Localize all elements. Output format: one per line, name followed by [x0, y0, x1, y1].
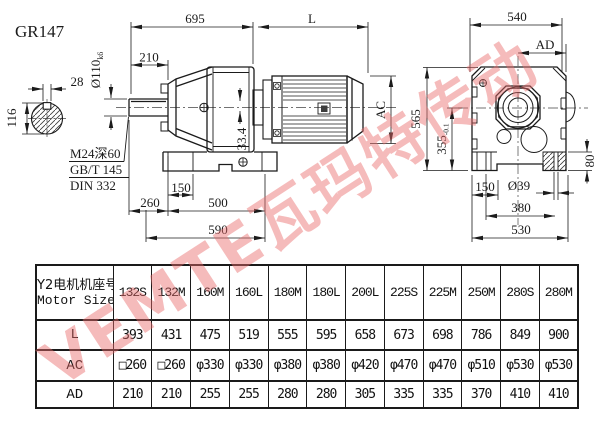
cell-AC-250M: φ510 [462, 350, 501, 381]
cell-L-200L: 658 [346, 320, 385, 350]
cell-AC-180M: φ380 [268, 350, 307, 381]
spec-table: Y2电机机座号Motor Size132S132M160M160L180M180… [35, 264, 579, 409]
cell-AC-160M: φ330 [191, 350, 230, 381]
front-view [116, 67, 398, 171]
cell-AD-160L: 255 [229, 381, 268, 408]
dim-key-width: 28 [71, 74, 84, 89]
technical-drawing: GR147 28 116 M24深60 GB/T 145 DIN 332 [0, 0, 600, 262]
dim-total-height: 565 [408, 109, 423, 129]
dim-front-span: 500 [208, 195, 228, 210]
model-label: GR147 [15, 22, 65, 41]
cell-L-132M: 431 [152, 320, 191, 350]
cell-AD-250M: 370 [462, 381, 501, 408]
cell-AC-160L: φ330 [229, 350, 268, 381]
cell-L-132S: 393 [113, 320, 152, 350]
dim-hole-dia: Ø39 [508, 178, 530, 193]
spec-table-container: Y2电机机座号Motor Size132S132M160M160L180M180… [35, 264, 579, 409]
dim-side-width: 540 [507, 9, 527, 24]
cell-AD-132S: 210 [113, 381, 152, 408]
dim-key-pos: 33.4 [234, 127, 249, 150]
column-header-280S: 280S [501, 265, 540, 320]
column-header-180M: 180M [268, 265, 307, 320]
dim-front-overhang: 260 [140, 195, 160, 210]
dim-shaft-dia: Ø110k6 [88, 52, 105, 88]
cell-AD-280M: 410 [539, 381, 578, 408]
dim-section-height: 116 [4, 108, 19, 128]
row-label-AD: AD [36, 381, 113, 408]
note-din: DIN 332 [70, 178, 116, 193]
column-header-132S: 132S [113, 265, 152, 320]
column-header-250M: 250M [462, 265, 501, 320]
cell-L-160L: 519 [229, 320, 268, 350]
cell-L-160M: 475 [191, 320, 230, 350]
cell-AD-225S: 335 [384, 381, 423, 408]
cell-L-250M: 786 [462, 320, 501, 350]
dim-side-span: 380 [511, 200, 531, 215]
cell-L-225M: 698 [423, 320, 462, 350]
dim-foot-hole-side: 150 [475, 179, 495, 194]
row-label-AC: AC [36, 350, 113, 381]
cell-AC-225M: φ470 [423, 350, 462, 381]
column-header-180L: 180L [307, 265, 346, 320]
motor-size-header: Y2电机机座号Motor Size [36, 265, 113, 320]
cell-AD-180M: 280 [268, 381, 307, 408]
column-header-225S: 225S [384, 265, 423, 320]
note-gbt: GB/T 145 [70, 162, 122, 177]
dim-shaft-length: 210 [139, 50, 159, 65]
cell-AC-280S: φ530 [501, 350, 540, 381]
dim-motor-length: L [308, 11, 316, 26]
column-header-160M: 160M [191, 265, 230, 320]
cell-AD-132M: 210 [152, 381, 191, 408]
dim-side-total: 530 [511, 222, 531, 237]
cell-AC-132S: □260 [113, 350, 152, 381]
cell-L-225S: 673 [384, 320, 423, 350]
note-thread: M24深60 [70, 146, 121, 161]
cell-AD-280S: 410 [501, 381, 540, 408]
table-row-L: L393431475519555595658673698786849900 [36, 320, 578, 350]
cell-AC-280M: φ530 [539, 350, 578, 381]
cell-L-180M: 555 [268, 320, 307, 350]
shaft-section-view [22, 84, 68, 139]
cell-L-180L: 595 [307, 320, 346, 350]
cell-AC-132M: □260 [152, 350, 191, 381]
page: GR147 28 116 M24深60 GB/T 145 DIN 332 [0, 0, 600, 441]
dim-foot-hole-front: 150 [171, 180, 191, 195]
column-header-160L: 160L [229, 265, 268, 320]
dim-foot-height: 80 [582, 155, 597, 168]
column-header-132M: 132M [152, 265, 191, 320]
cell-L-280S: 849 [501, 320, 540, 350]
table-row-AC: AC□260□260φ330φ330φ380φ380φ420φ470φ470φ5… [36, 350, 578, 381]
dim-ac: AC [373, 101, 388, 119]
column-header-280M: 280M [539, 265, 578, 320]
dim-front-total: 590 [208, 222, 228, 237]
row-label-L: L [36, 320, 113, 350]
column-header-225M: 225M [423, 265, 462, 320]
cell-AD-180L: 280 [307, 381, 346, 408]
cell-AD-225M: 335 [423, 381, 462, 408]
cell-AC-200L: φ420 [346, 350, 385, 381]
thread-note: M24深60 GB/T 145 DIN 332 [69, 117, 129, 194]
table-row-AD: AD210210255255280280305335335370410410 [36, 381, 578, 408]
cell-AC-180L: φ380 [307, 350, 346, 381]
dim-ad: AD [536, 37, 555, 52]
cell-AC-225S: φ470 [384, 350, 423, 381]
dim-top-width: 695 [185, 11, 205, 26]
cell-AD-200L: 305 [346, 381, 385, 408]
cell-L-280M: 900 [539, 320, 578, 350]
dim-axis-height: 355-0.1 [434, 123, 451, 155]
column-header-200L: 200L [346, 265, 385, 320]
cell-AD-160M: 255 [191, 381, 230, 408]
